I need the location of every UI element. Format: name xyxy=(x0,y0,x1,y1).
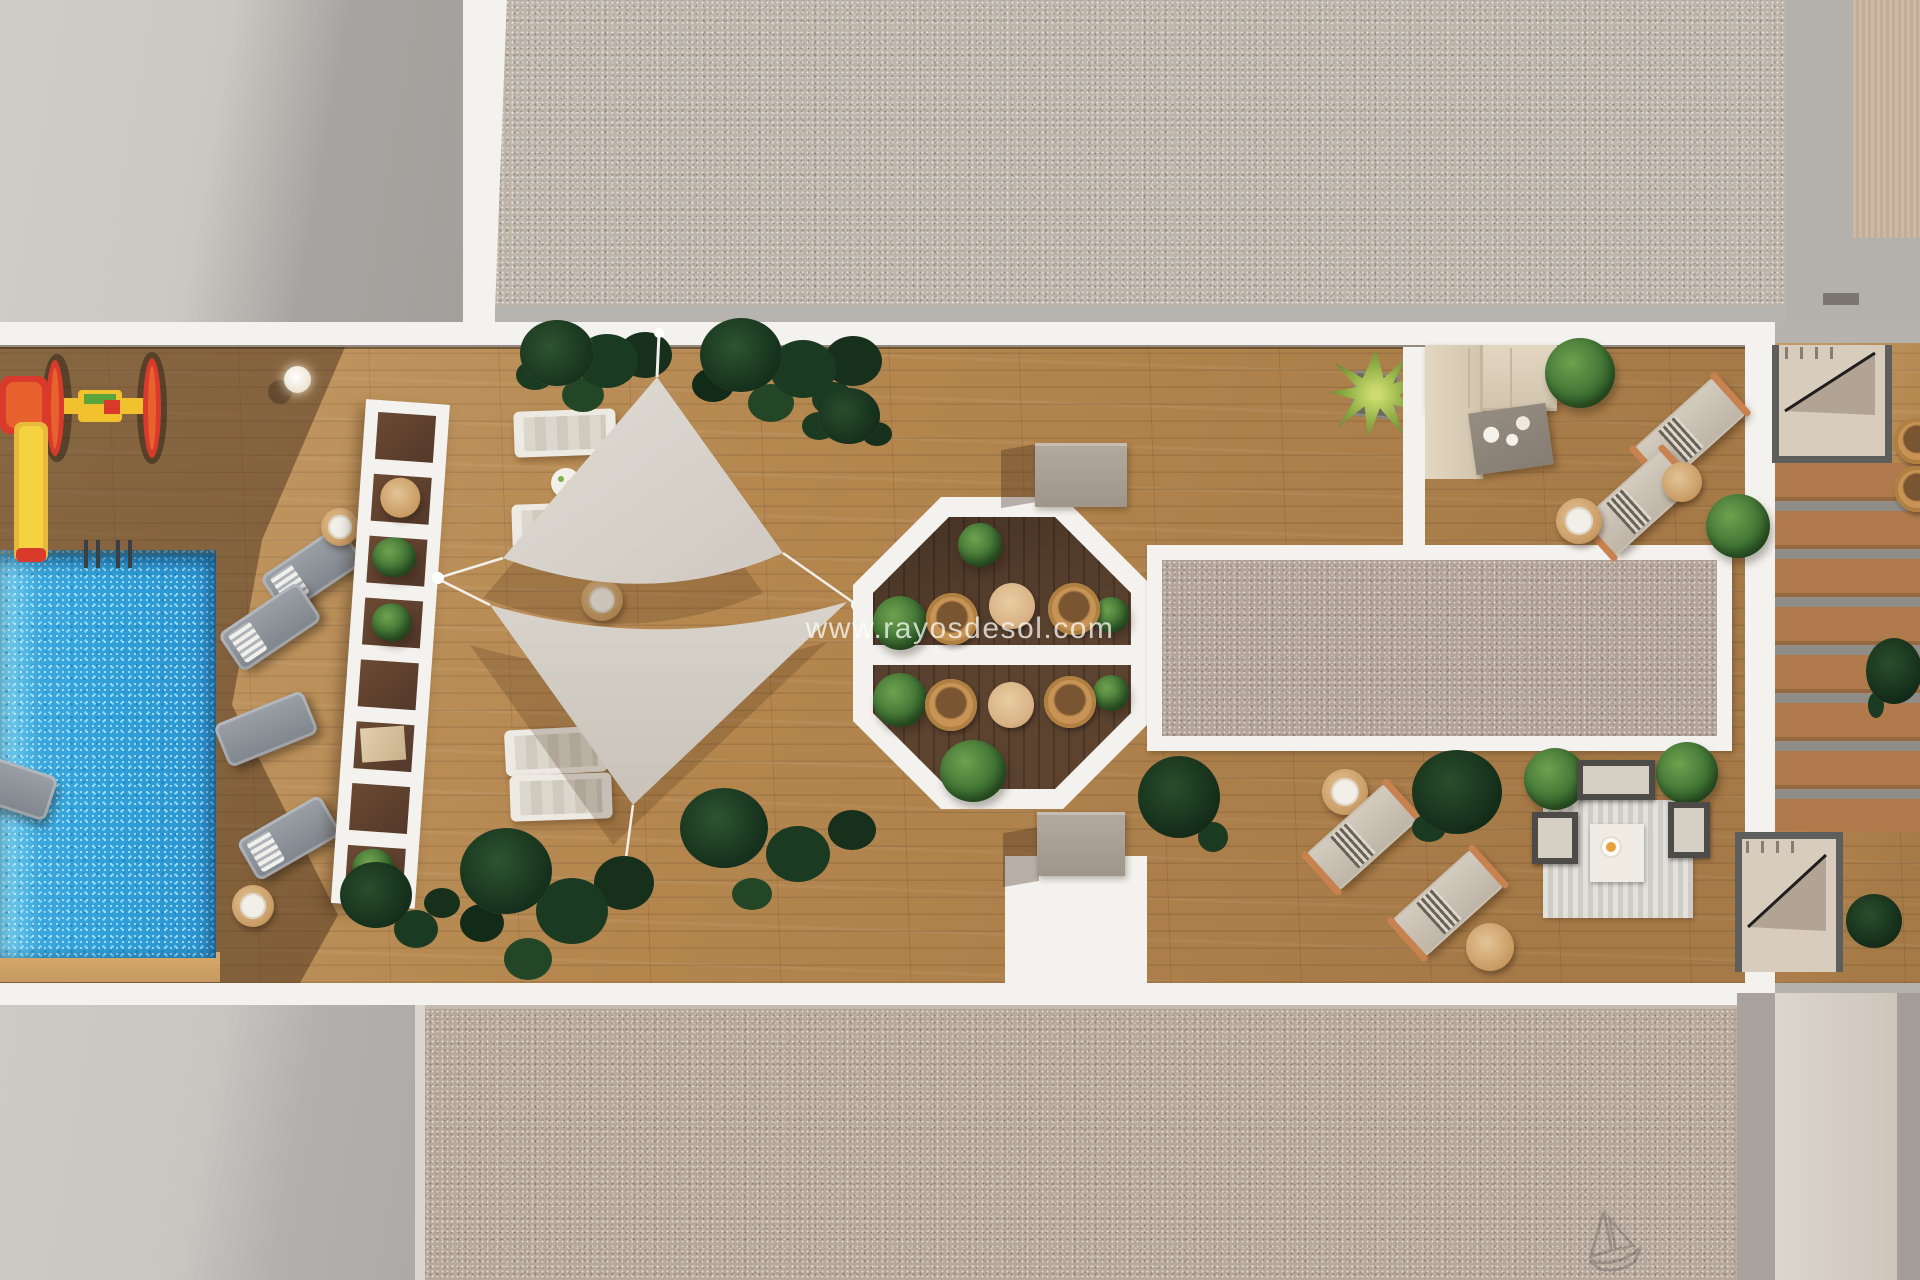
tropical-tree-cluster xyxy=(460,828,552,914)
lower-right-wall xyxy=(1737,993,1775,1280)
ficus-plant xyxy=(1412,750,1502,834)
upper-gravel-roof xyxy=(495,0,1815,310)
sun-lounger xyxy=(513,408,617,458)
lounger-fabric xyxy=(523,415,606,452)
tropical-tree-cluster xyxy=(340,862,412,928)
tropical-tree-cluster xyxy=(680,788,768,868)
octagon-plant xyxy=(940,740,1006,802)
lounge-chair xyxy=(1668,802,1710,858)
octagon-dining-area xyxy=(853,497,1151,809)
side-table xyxy=(1662,462,1702,502)
lower-gravel-roof xyxy=(425,1005,1737,1280)
watermark: www.rayosdesol.com xyxy=(640,612,1280,652)
side-table xyxy=(321,508,359,546)
side-table xyxy=(1466,923,1514,971)
drinks-tray xyxy=(589,587,615,613)
lounger-fabric xyxy=(514,732,598,770)
sofa-cushion-seam xyxy=(1510,348,1512,408)
lower-right-walk xyxy=(1775,993,1897,1280)
coffee-table xyxy=(1468,403,1554,475)
sun-lounger xyxy=(504,725,608,776)
deck-lamp xyxy=(284,366,311,393)
plant xyxy=(371,536,418,579)
roof-hatch xyxy=(1037,812,1125,876)
stairs-top-band xyxy=(1775,322,1920,343)
roof-vent xyxy=(1823,293,1859,305)
drinks-tray xyxy=(1565,507,1593,535)
neighbor-building-corner xyxy=(1853,0,1920,238)
towel xyxy=(227,621,268,664)
octagon-plant xyxy=(958,523,1002,567)
plant xyxy=(1545,338,1615,408)
plant xyxy=(1706,494,1770,558)
upper-roof-wall xyxy=(0,0,463,324)
drinks-tray xyxy=(328,515,352,539)
swimming-pool xyxy=(0,550,216,958)
coffee-table xyxy=(1590,824,1644,882)
hatch-shadow xyxy=(1001,444,1037,508)
drinks-tray xyxy=(1331,778,1359,806)
chair-cushion xyxy=(1538,818,1572,858)
plant xyxy=(1866,638,1920,704)
folded-lounger xyxy=(360,726,406,763)
lower-apron-wall xyxy=(0,1005,415,1280)
plant xyxy=(1656,742,1718,804)
apron-edge xyxy=(415,1005,425,1280)
towel xyxy=(1330,821,1376,868)
stairwell xyxy=(1772,345,1892,463)
tropical-tree-cluster xyxy=(520,320,594,386)
towel xyxy=(1416,887,1462,934)
dining-table xyxy=(988,682,1034,728)
lounger-fabric xyxy=(519,779,602,816)
octagon-plant xyxy=(1093,675,1129,711)
playground xyxy=(0,348,190,588)
lounge-chair xyxy=(1577,760,1655,800)
tropical-tree-cluster xyxy=(700,318,782,392)
tropical-tree-cluster xyxy=(818,388,880,444)
octagon-plant xyxy=(873,673,927,727)
roof-hatch xyxy=(1035,443,1127,507)
lounge-chair xyxy=(1532,812,1578,864)
tray-table xyxy=(551,468,581,498)
walkway xyxy=(1403,347,1425,547)
pergola-table xyxy=(379,476,422,519)
side-table xyxy=(1556,498,1602,544)
lower-right-edge xyxy=(1897,993,1920,1280)
plant xyxy=(370,602,413,643)
stairwell xyxy=(1735,832,1843,972)
ficus-plant xyxy=(1138,756,1220,838)
round-table xyxy=(581,579,623,621)
dining-chair xyxy=(1044,676,1096,728)
sun-lounger xyxy=(509,772,613,822)
rooftop-terrace-render: www.rayosdesol.com xyxy=(0,0,1920,1280)
towel xyxy=(1606,487,1652,534)
plant xyxy=(1846,894,1902,948)
sofa-cushion-seam xyxy=(1468,348,1470,408)
towel xyxy=(246,830,286,872)
dining-chair xyxy=(925,679,977,731)
chair-cushion xyxy=(1674,808,1704,852)
drinks-tray xyxy=(240,893,266,919)
chair-cushion xyxy=(1583,766,1649,794)
sun-lounger xyxy=(511,501,615,551)
hatch-shadow xyxy=(1003,827,1039,887)
side-table xyxy=(232,885,274,927)
lounger-fabric xyxy=(521,508,604,545)
